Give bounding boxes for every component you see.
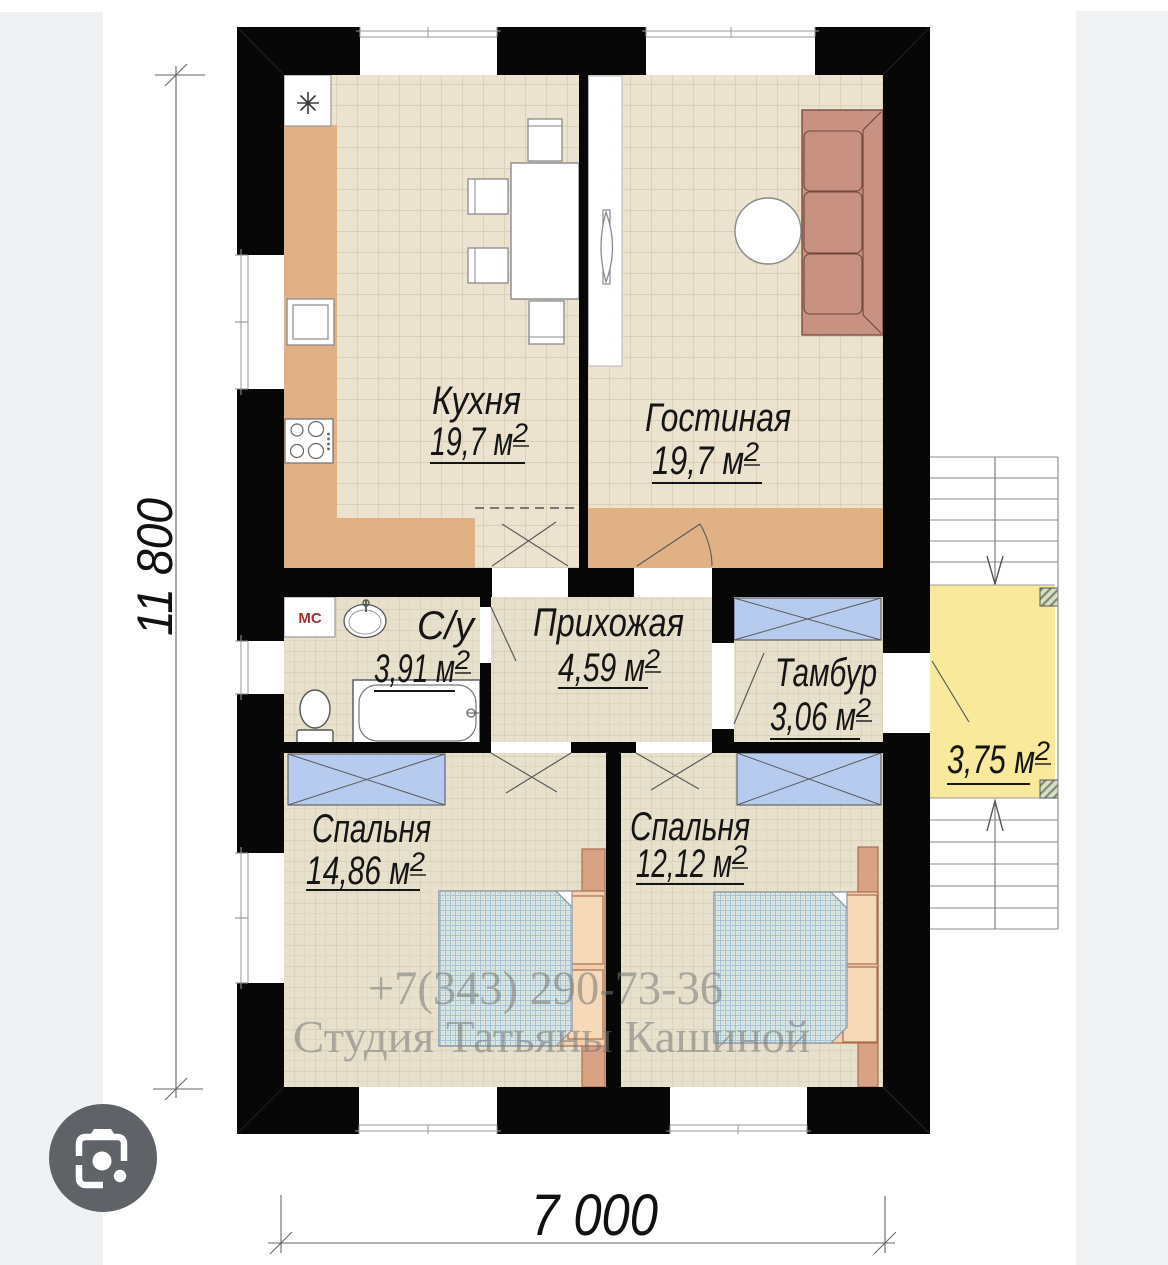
svg-text:Кухня: Кухня <box>432 379 521 423</box>
svg-text:Гостиная: Гостиная <box>645 396 791 440</box>
svg-text:2: 2 <box>855 693 871 723</box>
svg-text:С/у: С/у <box>417 604 477 648</box>
svg-text:Спальня: Спальня <box>312 807 431 851</box>
svg-text:14,86 м: 14,86 м <box>306 849 410 893</box>
svg-text:2: 2 <box>1034 736 1050 766</box>
svg-text:2: 2 <box>644 644 660 674</box>
svg-text:Прихожая: Прихожая <box>533 601 684 645</box>
svg-text:3,06 м: 3,06 м <box>770 695 856 739</box>
svg-text:2: 2 <box>512 418 528 448</box>
svg-text:12,12 м: 12,12 м <box>636 842 732 886</box>
svg-text:2: 2 <box>743 437 759 467</box>
svg-text:19,7 м: 19,7 м <box>430 420 513 464</box>
svg-text:Студия Татьяны Кашиной: Студия Татьяны Кашиной <box>293 1011 810 1062</box>
svg-text:+7(343) 290-73-36: +7(343) 290-73-36 <box>368 962 723 1015</box>
svg-text:2: 2 <box>731 840 747 870</box>
svg-text:2: 2 <box>409 847 425 877</box>
svg-text:3,75 м: 3,75 м <box>947 738 1035 782</box>
svg-text:11 800: 11 800 <box>127 498 183 636</box>
svg-text:2: 2 <box>454 645 470 675</box>
svg-text:3,91 м: 3,91 м <box>374 647 455 691</box>
svg-text:Тамбур: Тамбур <box>775 651 877 695</box>
svg-text:7 000: 7 000 <box>531 1183 658 1248</box>
svg-text:4,59 м: 4,59 м <box>558 646 645 690</box>
svg-text:МС: МС <box>298 610 321 627</box>
svg-text:19,7 м: 19,7 м <box>652 439 744 483</box>
